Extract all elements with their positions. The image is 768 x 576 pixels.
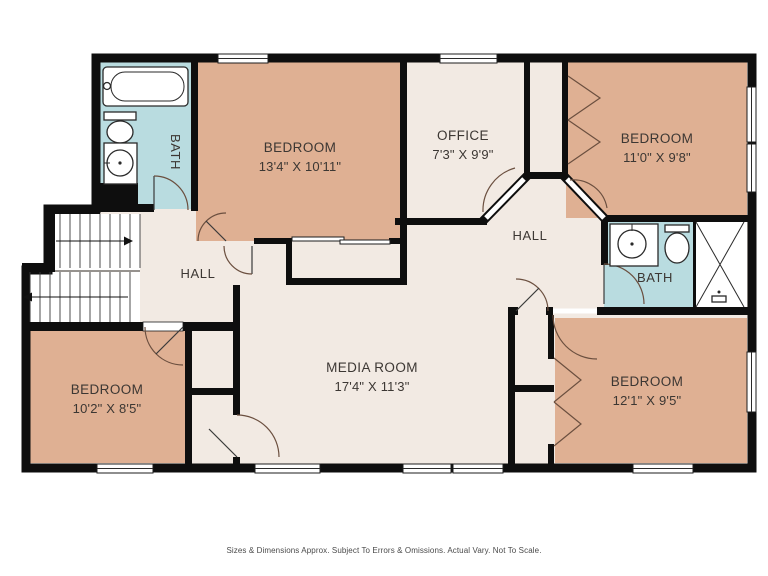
- sliding-door: [340, 240, 390, 244]
- disclaimer-text: Sizes & Dimensions Approx. Subject To Er…: [226, 546, 541, 555]
- bedroom-bottom-left-room: [26, 331, 185, 463]
- wall-br-top-c: [597, 307, 752, 315]
- toilet-bowl: [665, 233, 689, 263]
- bath-top-left-label: BATH: [168, 134, 183, 170]
- wall-bedroomtl-bottom-b: [389, 238, 407, 244]
- wall-br-top-b: [546, 307, 553, 315]
- door-opening: [143, 322, 183, 331]
- floor-plan-page: BEDROOM 13'4" X 10'11" OFFICE 7'3" X 9'9…: [0, 0, 768, 576]
- wall-office-right: [524, 58, 530, 178]
- bedroom-br-label: BEDROOM: [611, 374, 684, 389]
- office-dims: 7'3" X 9'9": [432, 147, 493, 162]
- wall-bedroomtl-office: [400, 58, 407, 285]
- wall-bath-shower-divider: [693, 222, 696, 307]
- shower-drain: [712, 296, 726, 302]
- wall-bedroombl-top-a: [22, 322, 143, 331]
- toilet-tank: [104, 112, 136, 120]
- wall-office-bottom: [395, 218, 487, 225]
- shower-knob: [718, 291, 721, 294]
- hall-left-label: HALL: [181, 266, 216, 281]
- sliding-door: [292, 237, 344, 241]
- wall-bath-tl-bottom: [96, 204, 154, 212]
- bath-right-label: BATH: [637, 270, 673, 285]
- bedroom-tr-label: BEDROOM: [621, 131, 694, 146]
- bedroom-bl-dims: 10'2" X 8'5": [73, 401, 142, 416]
- office-label: OFFICE: [437, 128, 489, 143]
- wall-closetbl-right-a: [233, 285, 240, 415]
- wall-bedroombl-right: [185, 322, 192, 468]
- bathtub-faucet: [104, 83, 111, 90]
- bedroom-bl-label: BEDROOM: [71, 382, 144, 397]
- media-room-dims: 17'4" X 11'3": [334, 379, 409, 394]
- bedroom-br-dims: 12'1" X 9'5": [613, 393, 682, 408]
- wall-closetbr-divider: [508, 385, 554, 392]
- sink-drain: [630, 242, 633, 245]
- wall-office-closet-bottom: [524, 172, 568, 179]
- toilet-tank: [665, 225, 689, 232]
- wall-bedroomtl-bottom-a: [254, 238, 292, 244]
- wall-office-closet-right: [562, 58, 568, 178]
- sink-drain: [118, 161, 121, 164]
- bedroom-tr-dims: 11'0" X 9'8": [623, 150, 691, 165]
- wall-bedroomtr-bottom: [601, 215, 752, 222]
- hall-right-label: HALL: [513, 228, 548, 243]
- wall-bathr-left: [601, 222, 608, 265]
- bedroom-bottom-right-room: [555, 318, 747, 463]
- wall-bath-tl-right: [191, 58, 198, 211]
- media-room-label: MEDIA ROOM: [326, 360, 418, 375]
- wall-closet-strip-bottom: [286, 278, 407, 285]
- bedroom-tl-label: BEDROOM: [264, 140, 337, 155]
- bedroom-tl-dims: 13'4" X 10'11": [259, 159, 342, 174]
- wall-closetbl-divider: [192, 388, 240, 395]
- toilet-bowl: [107, 121, 133, 143]
- floor-plan-drawing: BEDROOM 13'4" X 10'11" OFFICE 7'3" X 9'9…: [0, 0, 768, 576]
